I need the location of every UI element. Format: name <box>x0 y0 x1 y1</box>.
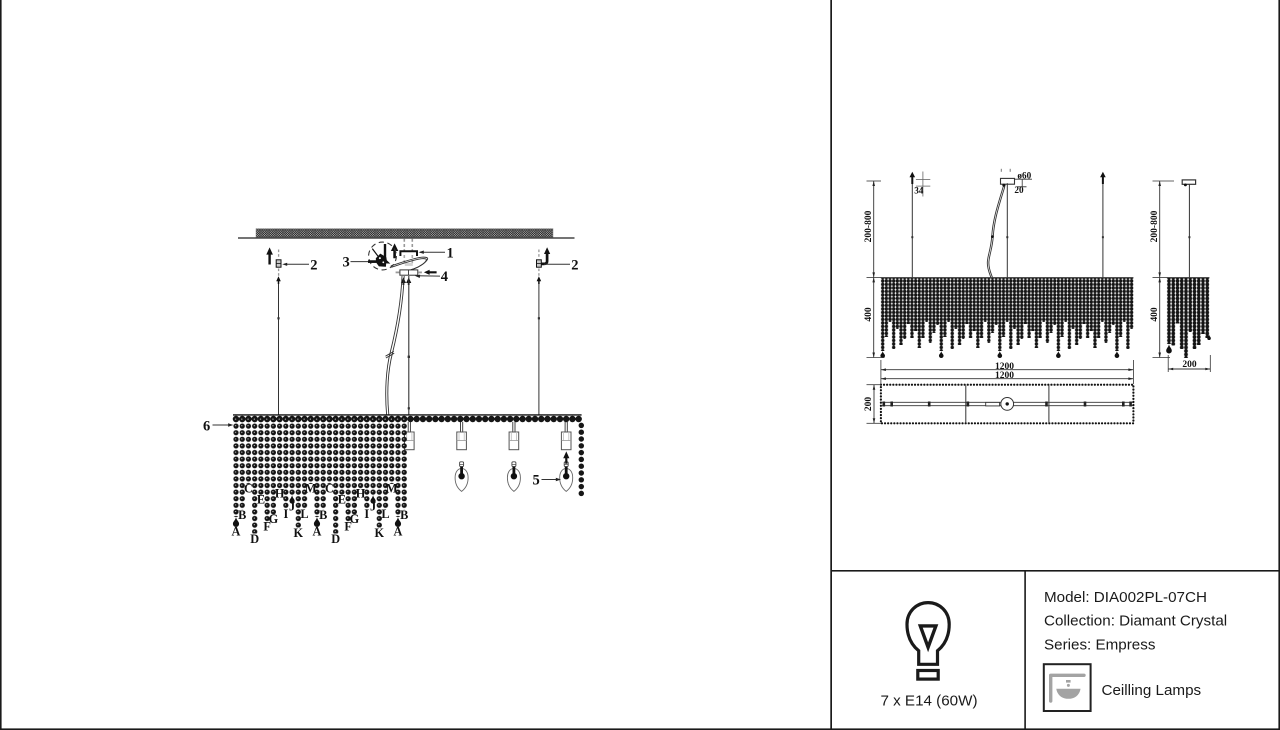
svg-text:K: K <box>294 526 304 540</box>
svg-text:M: M <box>386 482 398 496</box>
svg-text:400: 400 <box>1150 307 1160 322</box>
svg-text:Ceilling Lamps: Ceilling Lamps <box>1102 682 1202 699</box>
svg-text:L: L <box>381 507 389 521</box>
svg-text:ø60: ø60 <box>1017 171 1031 181</box>
svg-text:I: I <box>283 507 288 521</box>
svg-text:200: 200 <box>864 397 874 412</box>
svg-text:C: C <box>244 482 253 496</box>
svg-text:D: D <box>250 532 259 546</box>
svg-text:M: M <box>305 482 317 496</box>
svg-text:K: K <box>375 526 385 540</box>
svg-text:B: B <box>238 508 246 522</box>
svg-text:C: C <box>325 482 334 496</box>
svg-text:4: 4 <box>441 269 448 285</box>
svg-text:6: 6 <box>203 418 210 434</box>
svg-text:D: D <box>331 532 340 546</box>
svg-text:1200: 1200 <box>995 371 1014 381</box>
svg-text:B: B <box>319 508 327 522</box>
svg-text:5: 5 <box>533 472 540 488</box>
svg-text:2: 2 <box>571 257 578 273</box>
svg-text:G: G <box>350 512 360 526</box>
svg-text:G: G <box>269 512 279 526</box>
svg-text:200-800: 200-800 <box>1150 210 1160 242</box>
svg-text:2: 2 <box>310 257 317 273</box>
svg-text:Model: DIA002PL-07CH: Model: DIA002PL-07CH <box>1044 589 1207 606</box>
svg-text:E: E <box>338 493 346 507</box>
svg-text:H: H <box>275 487 285 501</box>
svg-text:L: L <box>300 507 308 521</box>
svg-text:H: H <box>356 487 366 501</box>
svg-text:7 x E14 (60W): 7 x E14 (60W) <box>880 693 977 710</box>
svg-text:34: 34 <box>914 186 924 196</box>
svg-text:400: 400 <box>864 307 874 322</box>
svg-text:I: I <box>364 507 369 521</box>
svg-text:200: 200 <box>1182 360 1197 370</box>
svg-text:B: B <box>400 508 408 522</box>
svg-text:Series: Empress: Series: Empress <box>1044 636 1156 653</box>
svg-text:20: 20 <box>1014 185 1024 195</box>
svg-text:200-800: 200-800 <box>864 210 874 242</box>
svg-text:1: 1 <box>447 245 454 261</box>
svg-text:3: 3 <box>343 255 350 271</box>
svg-text:E: E <box>257 493 265 507</box>
svg-text:Collection: Diamant Crystal: Collection: Diamant Crystal <box>1044 613 1227 630</box>
